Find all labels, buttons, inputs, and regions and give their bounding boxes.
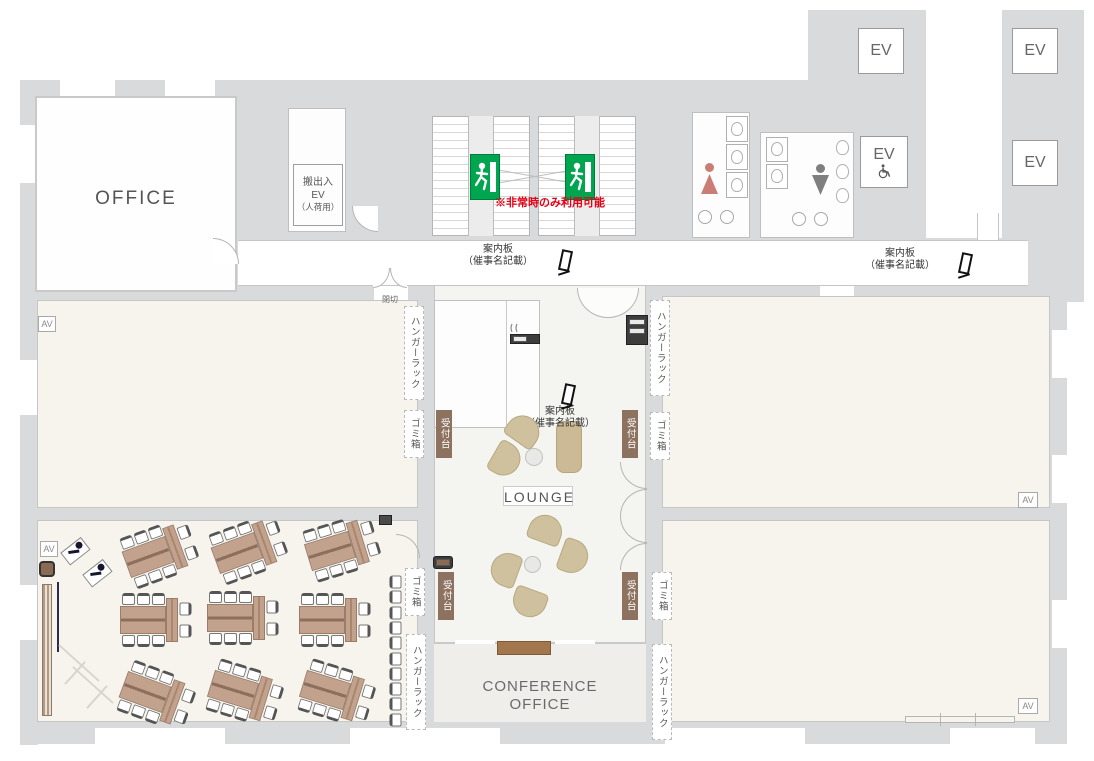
trash-bin-area: ゴミ箱 (405, 568, 425, 616)
stacked-chair (390, 637, 402, 650)
chair (297, 698, 313, 713)
elevator: EV (1012, 140, 1058, 186)
kitchen-appliance (510, 334, 540, 344)
stacked-chair (390, 606, 402, 619)
stacked-chair (390, 713, 402, 726)
sink-icon (792, 212, 806, 226)
av-box: AV (1018, 698, 1038, 714)
window-gap (165, 80, 215, 96)
chair (328, 563, 344, 578)
folded-tables-line (975, 713, 976, 726)
sink-icon (814, 212, 828, 226)
ev-label: EV (870, 42, 891, 60)
speaker-box (39, 561, 55, 577)
chair (343, 559, 359, 574)
chair (205, 698, 221, 713)
hanger-rack-area: ハンガーラック (404, 306, 424, 400)
banquet-table (207, 604, 253, 632)
sink-icon (698, 210, 712, 224)
chair (152, 593, 165, 605)
closed-partition-label: 閉切 (372, 294, 408, 305)
stacked-chair (390, 698, 402, 711)
stacked-chair (390, 667, 402, 680)
chair (219, 702, 235, 717)
reception-desk-label: 受付台 (441, 580, 451, 612)
conference-label-line2: OFFICE (510, 696, 571, 713)
reception-desk-label: 受付台 (625, 580, 635, 612)
window-gap (20, 585, 38, 640)
chair (311, 702, 327, 717)
banquet-table (345, 598, 357, 642)
accessible-elevator: EV (860, 136, 908, 188)
service-elevator-label-box: 搬出入 EV （人荷用） (293, 164, 343, 226)
chair (354, 705, 369, 721)
trash-bin-label: ゴミ箱 (655, 420, 665, 452)
conference-counter (497, 641, 551, 655)
hanger-rack-area: ハンガーラック (650, 300, 670, 396)
info-board-line1: 案内板 (885, 248, 915, 259)
chair (137, 593, 150, 605)
elevator: EV (858, 28, 904, 74)
event-room-northeast (662, 296, 1050, 508)
window-gap (1052, 455, 1067, 503)
av-box: AV (38, 316, 56, 332)
chair (236, 565, 252, 581)
hanger-rack-label: ハンガーラック (657, 655, 667, 729)
chair (331, 593, 344, 605)
chair (358, 625, 370, 638)
chair (224, 591, 237, 603)
window-gap (60, 80, 115, 96)
vending-shelf (629, 319, 645, 325)
hanger-rack-area: ハンガーラック (652, 644, 672, 740)
chair (250, 560, 266, 576)
chair (314, 568, 330, 583)
lounge-label-text: LOUNGE (504, 489, 575, 505)
av-label: AV (1022, 495, 1033, 505)
chair (147, 569, 163, 585)
stacked-chair (390, 621, 402, 634)
chair (161, 564, 177, 580)
folded-tables (905, 716, 1015, 723)
banquet-table (120, 606, 166, 634)
stacked-chair (390, 591, 402, 604)
window-gap (20, 360, 38, 415)
door-gap (455, 640, 495, 644)
service-ev-line2: EV (311, 190, 324, 203)
chair (233, 707, 249, 722)
trash-bin-label: ゴミ箱 (410, 576, 420, 608)
av-box: AV (1018, 492, 1038, 508)
trash-bin-area: ゴミ箱 (650, 412, 670, 460)
reception-desk: 受付台 (622, 410, 638, 458)
woman-icon (705, 163, 714, 172)
info-board-line2: （催事名記載） (463, 256, 533, 267)
chair (152, 635, 165, 647)
chair (239, 591, 252, 603)
window-gap (950, 728, 1035, 744)
window-gap (1052, 330, 1067, 378)
info-board-label: 案内板 （催事名記載） (440, 244, 556, 267)
round-table (524, 556, 541, 573)
chair (316, 635, 329, 647)
trash-bin-label: ゴミ箱 (657, 580, 667, 612)
urinal-icon (836, 140, 849, 155)
lounge-label: LOUNGE (503, 486, 573, 506)
toilet-icon (771, 169, 783, 183)
chair (133, 574, 149, 590)
ev-label: EV (1024, 154, 1045, 172)
av-label: AV (41, 319, 52, 329)
info-board-line1: 案内板 (483, 244, 513, 255)
toilet-icon (731, 122, 743, 136)
conference-office-label: CONFERENCE OFFICE (460, 678, 620, 714)
toilet-icon (731, 150, 743, 164)
chair (361, 684, 376, 700)
stacked-chair (390, 576, 402, 589)
emergency-note: ※非常時のみ利用可能 (470, 194, 630, 210)
round-table (525, 448, 543, 466)
wheelchair-icon (876, 164, 892, 179)
chair (122, 635, 135, 647)
hanger-rack-label: ハンガーラック (409, 316, 419, 390)
chair (122, 593, 135, 605)
steam-icon (508, 318, 522, 334)
window-gap (665, 728, 805, 744)
chair (262, 705, 277, 721)
door-gap (555, 640, 595, 644)
trash-bin-area: ゴミ箱 (404, 410, 424, 458)
chair (301, 635, 314, 647)
chair (316, 593, 329, 605)
chair (301, 593, 314, 605)
urinal-icon (836, 188, 849, 203)
coffee-machine (433, 556, 453, 569)
reception-desk-label: 受付台 (439, 418, 449, 450)
toilet-icon (731, 178, 743, 192)
appliance-detail (513, 336, 527, 342)
vending-machine (626, 315, 648, 345)
chair (137, 635, 150, 647)
chair (209, 633, 222, 645)
vending-shelf (629, 328, 645, 334)
info-board-line2: （催事名記載） (865, 260, 935, 271)
ev-label: EV (873, 146, 894, 164)
man-icon (816, 164, 825, 173)
trash-bin-label: ゴミ箱 (409, 418, 419, 450)
appliance-detail (436, 559, 450, 566)
sink-icon (720, 210, 734, 224)
kitchen-wall (506, 300, 507, 428)
urinal-icon (836, 164, 849, 179)
ev-label: EV (1024, 42, 1045, 60)
wall (660, 508, 1050, 520)
window-gap (1052, 600, 1067, 648)
av-label: AV (1022, 701, 1033, 711)
chair (325, 707, 341, 722)
elevator: EV (1012, 28, 1058, 74)
service-ev-line3: （人荷用） (297, 202, 340, 213)
pointer-rod (57, 582, 59, 652)
folded-tables-line (940, 713, 941, 726)
info-board-label: 案内板 （催事名記載） (842, 248, 958, 271)
chair (331, 635, 344, 647)
trash-bin-area: ゴミ箱 (652, 572, 672, 620)
service-ev-line1: 搬出入 (303, 177, 333, 190)
chair (222, 570, 238, 586)
banquet-table-group (264, 590, 380, 650)
reception-desk: 受付台 (438, 572, 454, 620)
projection-screen (42, 584, 52, 716)
hanger-rack-label: ハンガーラック (655, 311, 665, 385)
office-room-label: OFFICE (35, 188, 237, 210)
hanger-rack-label: ハンガーラック (411, 645, 421, 719)
event-room-southeast (662, 520, 1050, 722)
av-box: AV (40, 541, 58, 557)
chair (358, 603, 370, 616)
chair (209, 591, 222, 603)
hanger-rack-area: ハンガーラック (406, 634, 426, 730)
stacked-chair (390, 683, 402, 696)
event-room-northwest (37, 300, 418, 508)
closed-label-text: 閉切 (382, 295, 398, 304)
elevator-hall (926, 10, 1002, 238)
av-label: AV (43, 544, 54, 554)
window-gap (95, 728, 225, 744)
conference-label-line1: CONFERENCE (482, 678, 597, 695)
reception-desk: 受付台 (622, 572, 638, 620)
reception-desk: 受付台 (436, 410, 452, 458)
chair (239, 633, 252, 645)
stacked-chair (390, 652, 402, 665)
banquet-table (299, 606, 345, 634)
floor-plan: OFFICE 搬出入 EV （人荷用） ※非常時のみ利用可能 EV (0, 0, 1094, 761)
toilet-icon (771, 142, 783, 156)
chair (224, 633, 237, 645)
reception-desk-label: 受付台 (625, 418, 635, 450)
